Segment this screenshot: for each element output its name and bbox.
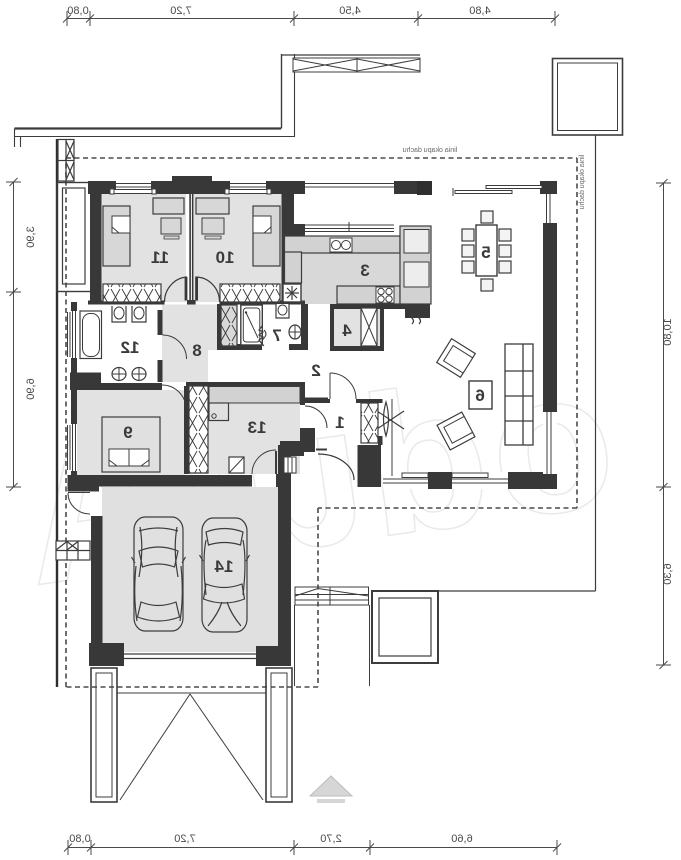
svg-text:0,80: 0,80: [69, 833, 90, 845]
svg-text:6: 6: [475, 386, 484, 405]
svg-text:2,70: 2,70: [320, 833, 341, 845]
svg-text:12: 12: [121, 338, 140, 357]
svg-text:linia okapu dachu: linia okapu dachu: [579, 155, 586, 210]
svg-text:2: 2: [311, 361, 320, 380]
svg-text:9: 9: [123, 423, 132, 442]
svg-text:13: 13: [248, 418, 267, 437]
svg-text:3,90: 3,90: [25, 226, 37, 247]
svg-text:3: 3: [360, 261, 369, 280]
svg-text:7: 7: [272, 326, 281, 345]
svg-text:10: 10: [216, 248, 235, 267]
svg-text:linia okapu dachu: linia okapu dachu: [403, 147, 458, 154]
svg-text:8: 8: [192, 341, 201, 360]
svg-text:0,80: 0,80: [67, 5, 88, 17]
svg-text:7,20: 7,20: [174, 833, 195, 845]
svg-text:4: 4: [342, 321, 352, 340]
svg-text:11: 11: [151, 248, 169, 267]
svg-text:6,90: 6,90: [25, 378, 37, 399]
svg-text:4,50: 4,50: [339, 5, 360, 17]
svg-text:14: 14: [214, 557, 233, 576]
svg-text:6,60: 6,60: [451, 833, 472, 845]
svg-text:1: 1: [335, 413, 344, 432]
svg-text:7,20: 7,20: [170, 5, 191, 17]
svg-text:4,80: 4,80: [469, 5, 490, 17]
svg-text:5: 5: [481, 243, 490, 262]
svg-text:10,80: 10,80: [662, 318, 674, 346]
svg-text:6,30: 6,30: [662, 563, 674, 584]
